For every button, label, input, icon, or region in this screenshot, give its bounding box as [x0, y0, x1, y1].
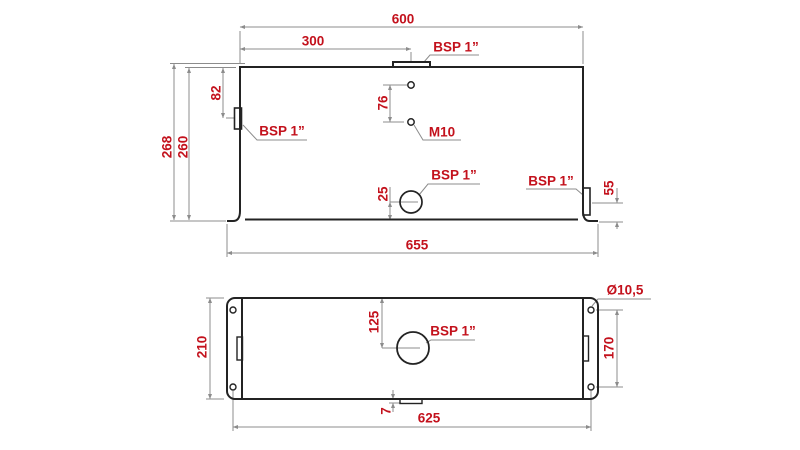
mounting-hole-bottom-left [230, 384, 236, 390]
front-dim-filler-position: 300 [302, 34, 325, 48]
front-dim-left-port-offset: 82 [209, 85, 223, 100]
plan-dim-drain-offset: 7 [379, 407, 393, 415]
front-dim-body-height: 260 [176, 136, 190, 159]
right-port-fitting [583, 188, 590, 215]
plan-label-hole-diameter: Ø10,5 [607, 283, 644, 297]
front-label-left-port: BSP 1” [259, 124, 305, 138]
drawing-linework [0, 0, 800, 450]
plan-dim-depth: 210 [195, 336, 209, 359]
front-dim-overall-width: 600 [392, 12, 415, 26]
plan-label-filler-port: BSP 1” [430, 324, 476, 338]
front-dim-m10-spacing: 76 [376, 95, 390, 110]
plan-dim-hole-spacing-length: 625 [418, 411, 441, 425]
m10-hole-top [408, 82, 414, 88]
front-label-right-port: BSP 1” [528, 174, 574, 188]
mounting-hole-top-right [588, 307, 594, 313]
front-label-m10-holes: M10 [429, 125, 455, 139]
mounting-hole-bottom-right [588, 384, 594, 390]
front-label-filler-port: BSP 1” [433, 40, 479, 54]
technical-drawing-canvas: 600 300 BSP 1” 268 260 82 BSP 1” 76 M10 … [0, 0, 800, 450]
mounting-hole-top-left [230, 307, 236, 313]
tank-plan-outline [227, 298, 598, 404]
front-dim-total-height: 268 [160, 136, 174, 159]
plan-dim-hole-spacing-width: 170 [602, 337, 616, 360]
front-dim-drain-height: 25 [376, 186, 390, 201]
front-view [170, 27, 623, 257]
front-dim-right-port-height: 55 [602, 180, 616, 195]
plan-drain-stub [400, 399, 422, 404]
tank-body-outline [227, 67, 598, 221]
m10-hole-bottom [408, 119, 414, 125]
plan-dim-filler-offset: 125 [367, 311, 381, 334]
front-dim-overall-length: 655 [406, 238, 429, 252]
front-label-drain-port: BSP 1” [431, 168, 477, 182]
tank-front-outline [227, 62, 598, 221]
